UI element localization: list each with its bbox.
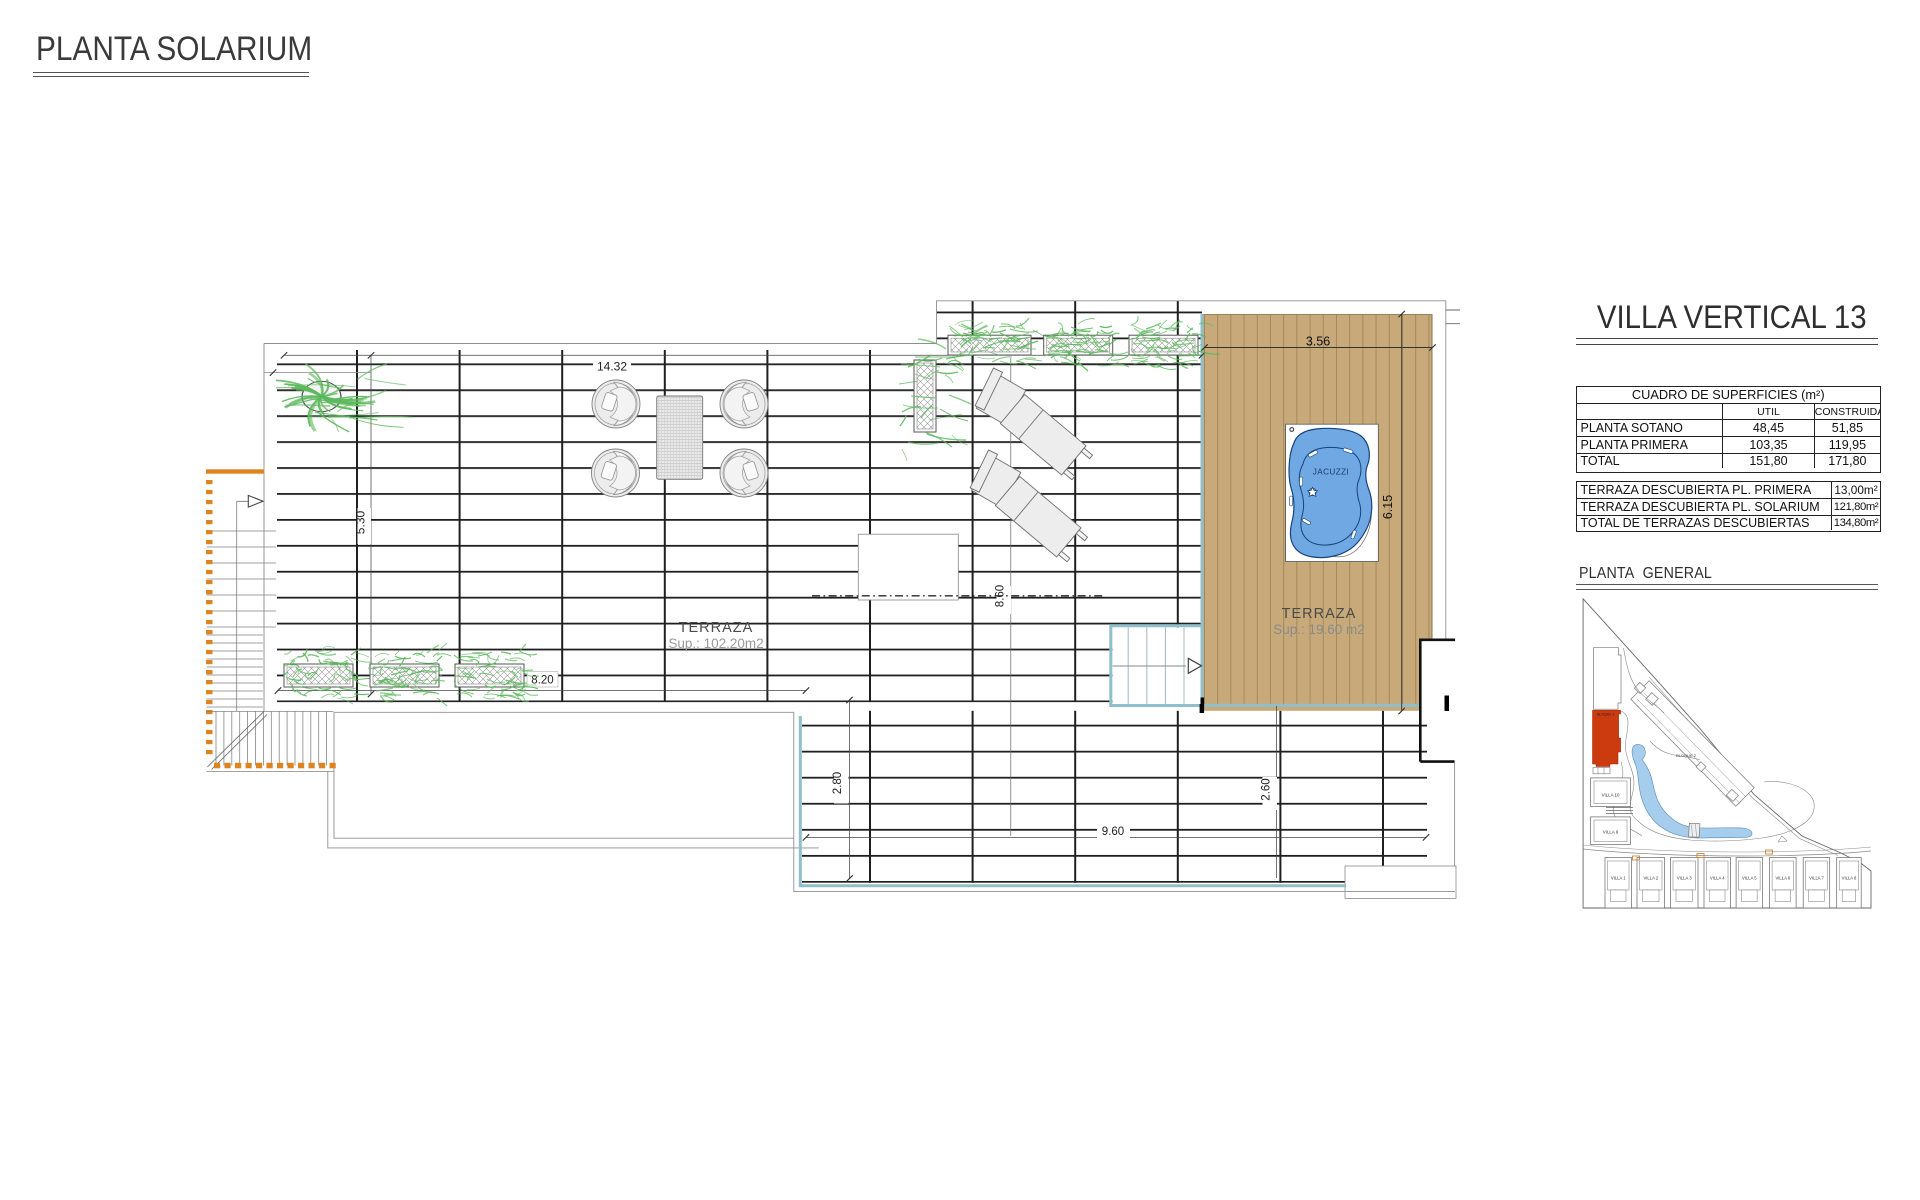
svg-text:6.15: 6.15 [1381,495,1395,519]
svg-text:VILLA 7: VILLA 7 [1809,876,1824,881]
svg-text:BLOQUE 1: BLOQUE 1 [1597,713,1615,717]
svg-text:3.56: 3.56 [1306,335,1330,349]
svg-text:Sup.: 102.20m2: Sup.: 102.20m2 [668,636,763,651]
svg-text:BLOQUE 2: BLOQUE 2 [1676,753,1697,758]
svg-text:VILLA 10: VILLA 10 [1602,793,1620,798]
svg-text:TERRAZA: TERRAZA [1282,606,1357,622]
svg-text:VILLA 4: VILLA 4 [1710,876,1725,881]
svg-text:VILLA 6: VILLA 6 [1775,876,1790,881]
svg-text:5.30: 5.30 [354,510,368,534]
svg-text:TERRAZA: TERRAZA [679,620,754,636]
svg-text:VILLA 2: VILLA 2 [1643,876,1658,881]
svg-text:VILLA 1: VILLA 1 [1611,876,1626,881]
svg-text:9.60: 9.60 [1102,826,1124,838]
svg-text:JACUZZI: JACUZZI [1313,468,1349,477]
svg-text:14.32: 14.32 [597,360,627,374]
svg-text:2.60: 2.60 [1261,778,1273,800]
svg-text:Sup.: 19.60 m2: Sup.: 19.60 m2 [1273,622,1365,637]
svg-text:2.80: 2.80 [832,772,844,794]
svg-text:VILLA 9: VILLA 9 [1603,830,1619,835]
svg-text:VILLA 5: VILLA 5 [1742,876,1757,881]
svg-text:VILLA 3: VILLA 3 [1677,876,1692,881]
svg-text:VILLA 8: VILLA 8 [1842,876,1857,881]
